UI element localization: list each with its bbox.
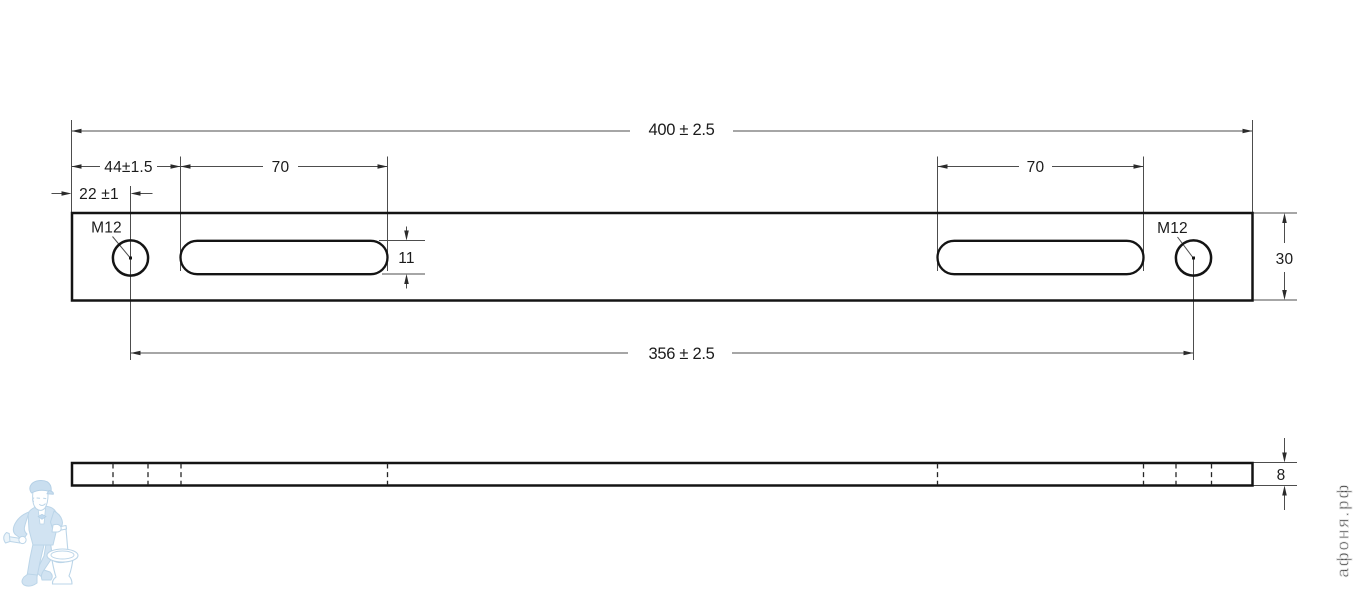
svg-text:30: 30 [1276, 251, 1294, 268]
svg-text:афоня.рф: афоня.рф [1335, 483, 1353, 578]
svg-text:22 ±1: 22 ±1 [79, 186, 119, 203]
svg-text:M12: M12 [1157, 220, 1188, 237]
svg-text:44±1.5: 44±1.5 [104, 159, 153, 176]
svg-text:400 ± 2.5: 400 ± 2.5 [649, 121, 715, 139]
svg-text:M12: M12 [91, 219, 122, 236]
svg-text:8: 8 [1277, 467, 1286, 484]
svg-text:70: 70 [272, 159, 290, 176]
svg-text:70: 70 [1027, 159, 1045, 176]
svg-text:356 ± 2.5: 356 ± 2.5 [649, 345, 715, 363]
svg-text:11: 11 [398, 250, 415, 267]
